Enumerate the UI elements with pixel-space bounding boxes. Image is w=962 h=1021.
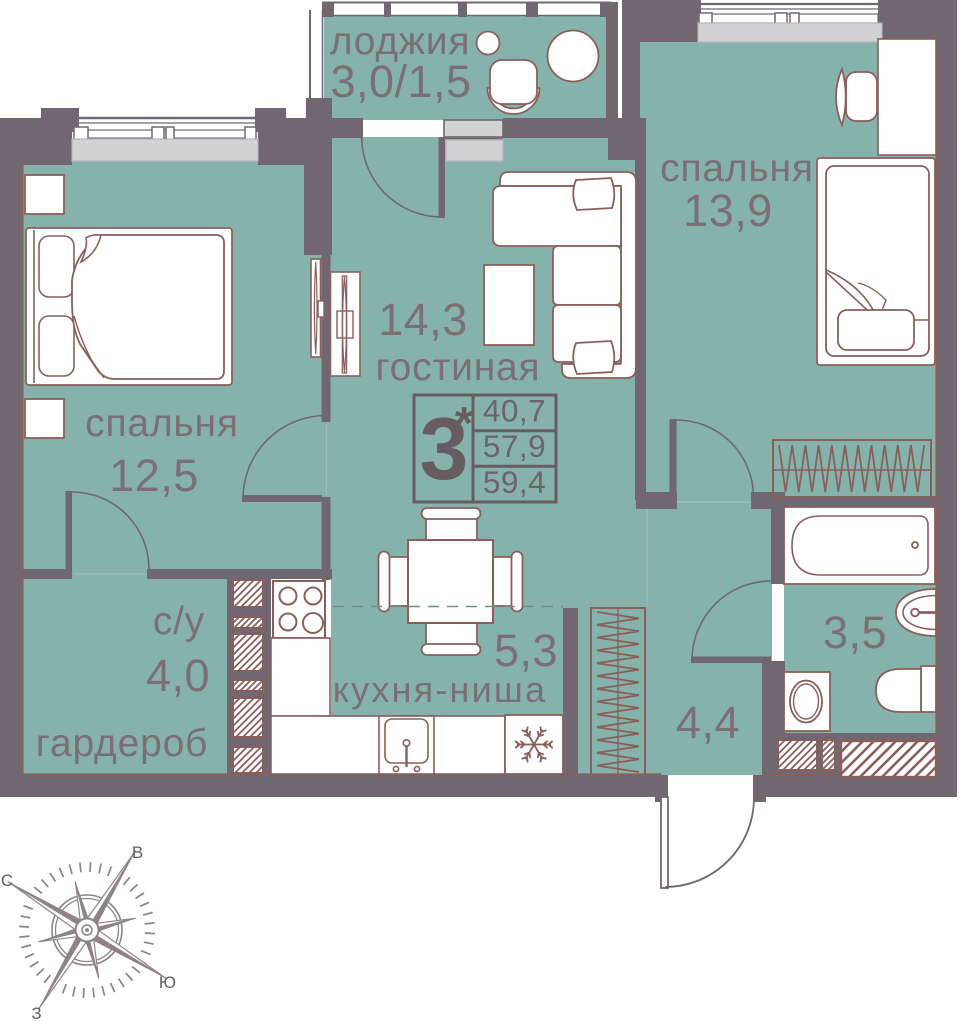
svg-text:гардероб: гардероб bbox=[36, 722, 208, 765]
svg-text:57,9: 57,9 bbox=[483, 428, 546, 464]
svg-text:спальня: спальня bbox=[660, 147, 814, 190]
svg-text:3,5: 3,5 bbox=[823, 607, 887, 658]
svg-text:4,4: 4,4 bbox=[676, 697, 740, 748]
svg-text:Ю: Ю bbox=[159, 973, 176, 992]
svg-text:14,3: 14,3 bbox=[378, 294, 468, 345]
svg-text:спальня: спальня bbox=[85, 402, 239, 445]
svg-text:12,5: 12,5 bbox=[109, 450, 199, 501]
svg-text:13,9: 13,9 bbox=[683, 185, 773, 236]
svg-text:*: * bbox=[455, 397, 473, 449]
svg-text:кухня-ниша: кухня-ниша bbox=[333, 669, 547, 710]
svg-text:В: В bbox=[132, 843, 143, 862]
svg-text:59,4: 59,4 bbox=[483, 464, 546, 500]
svg-text:гостиная: гостиная bbox=[376, 346, 541, 389]
svg-text:С: С bbox=[1, 871, 13, 890]
svg-text:с/у: с/у bbox=[153, 600, 205, 643]
svg-text:4,0: 4,0 bbox=[146, 650, 210, 701]
svg-text:40,7: 40,7 bbox=[483, 393, 546, 429]
svg-text:3,0/1,5: 3,0/1,5 bbox=[330, 56, 471, 107]
svg-text:З: З bbox=[31, 1004, 41, 1021]
